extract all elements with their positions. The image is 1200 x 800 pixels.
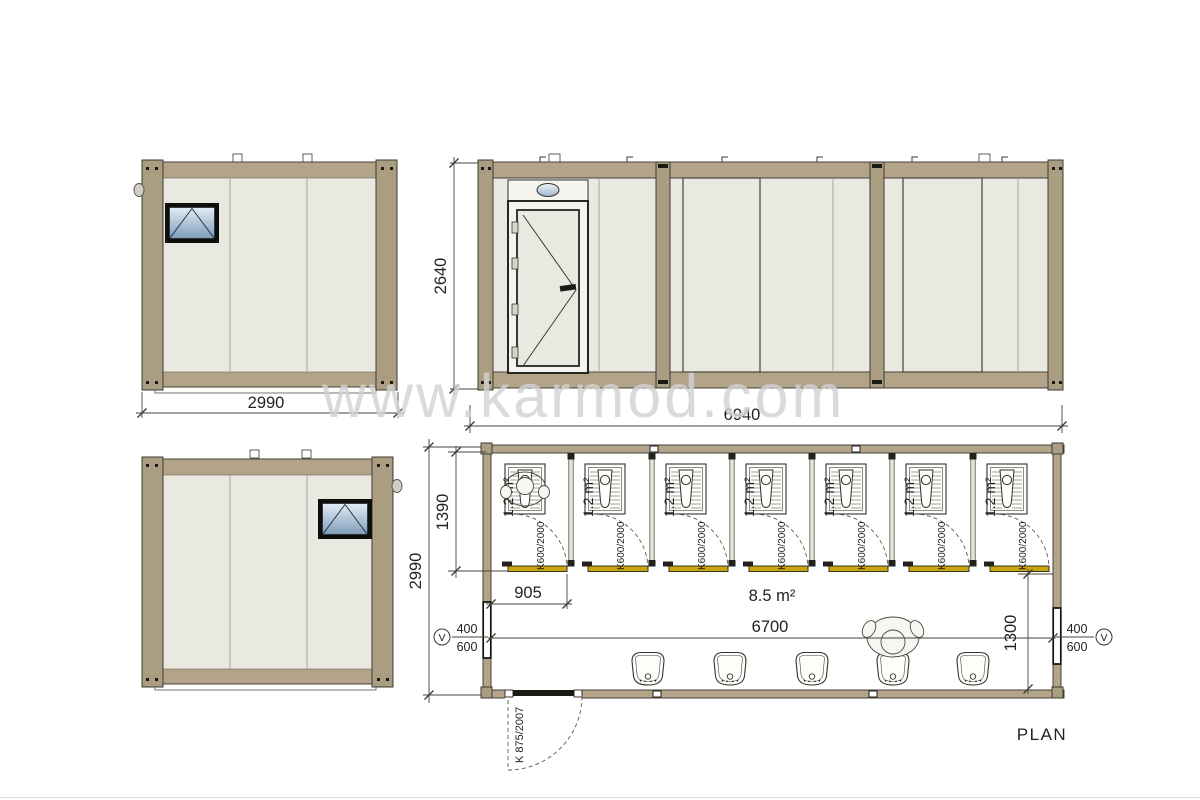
window-height: 600 — [1067, 640, 1088, 654]
lamp — [537, 184, 559, 197]
washbasin — [714, 653, 746, 686]
washbasin — [796, 653, 828, 686]
stall-partition — [649, 453, 656, 567]
watermark: www.karmod.com — [322, 361, 845, 431]
lifting-hook — [392, 480, 402, 493]
drawing-canvas: 2990 — [0, 0, 1200, 800]
stall-area-label: 1.2 m² — [901, 477, 917, 517]
entrance-door-elevation — [508, 180, 588, 373]
stall-area-label: 1.2 m² — [580, 477, 596, 517]
window-marker-left: 400 600 V — [434, 622, 488, 654]
stall-door-label: K600/2000 — [536, 521, 547, 570]
stall-area-label: 1.2 m² — [982, 477, 998, 517]
toilet-stall-6: 1.2 m² K600/2000 — [901, 464, 969, 572]
toilet-stall-5: 1.2 m² K600/2000 — [821, 464, 888, 572]
stall-partition — [568, 453, 575, 567]
stall-area-label: 1.2 m² — [741, 477, 757, 517]
roof-lug — [250, 450, 259, 458]
dim-label: 6700 — [752, 618, 789, 636]
toilet-stall-1: 1.2 m² K600/2000 — [500, 464, 567, 572]
plan-window-left — [483, 602, 491, 658]
side-elevation-bottom — [142, 450, 402, 690]
stall-door-label: K600/2000 — [777, 521, 788, 570]
stall-partition — [889, 453, 896, 567]
stall-area-label: 1.2 m² — [661, 477, 677, 517]
hall-area-label: 8.5 m² — [749, 587, 796, 605]
window-width: 400 — [1067, 622, 1088, 636]
stall-partition — [809, 453, 816, 567]
stall-partition — [970, 453, 977, 567]
dim-label: 2990 — [248, 394, 285, 412]
stall-door-label: K600/2000 — [857, 521, 868, 570]
corner-post-left — [142, 457, 163, 687]
toilet-stall-7: 1.2 m² K600/2000 — [982, 464, 1049, 572]
stall-door-label: K600/2000 — [616, 521, 627, 570]
window-symbol: V — [438, 632, 445, 644]
dim-label: 2990 — [407, 553, 425, 590]
dimension-hall-depth-1300: 1300 — [1002, 569, 1053, 694]
entry-door: K 875/2007 — [505, 689, 582, 770]
module-post — [870, 162, 884, 388]
corner-post-right — [376, 160, 397, 390]
top-rail — [163, 162, 376, 178]
top-rail — [163, 459, 372, 475]
corner-post-left — [478, 160, 493, 390]
module-post — [656, 162, 670, 388]
toilet-stall-2: 1.2 m² K600/2000 — [580, 464, 648, 572]
roof-lug — [303, 154, 312, 162]
top-rail — [493, 162, 1048, 178]
window-marker-right: 400 600 V — [1056, 622, 1112, 654]
dimension-stall-depth-1390: 1390 — [434, 446, 508, 578]
door-leaf — [513, 690, 574, 696]
window-width: 400 — [457, 622, 478, 636]
toilet-stall-3: 1.2 m² K600/2000 — [661, 464, 728, 572]
standing-person — [859, 617, 926, 657]
awning-window — [165, 203, 219, 243]
washbasin — [632, 653, 664, 686]
dim-label: 1300 — [1002, 615, 1020, 652]
dimension-stall-width-905: 905 — [486, 574, 572, 609]
entry-door-label: K 875/2007 — [514, 707, 526, 763]
floor-plan: 1.2 m² K600/2000 1.2 m² K600/2000 1.2 m²… — [407, 439, 1112, 770]
window-height: 600 — [457, 640, 478, 654]
corner-post-right — [372, 457, 393, 687]
roof-lug — [233, 154, 242, 162]
stall-door-label: K600/2000 — [1018, 521, 1029, 570]
stall-partition — [729, 453, 736, 567]
door-jamb — [574, 690, 582, 697]
roof-lug — [302, 450, 311, 458]
corner-post-left — [142, 160, 163, 390]
door-jamb — [505, 690, 513, 697]
dim-label: 1390 — [434, 494, 452, 531]
toilet-stall-4: 1.2 m² K600/2000 — [741, 464, 808, 572]
lifting-hook — [134, 184, 144, 197]
stall-area-label: 1.2 m² — [821, 477, 837, 517]
stall-door-label: K600/2000 — [697, 521, 708, 570]
wall-top — [481, 445, 1064, 453]
stall-door-label: K600/2000 — [937, 521, 948, 570]
bottom-rail — [163, 669, 372, 684]
dim-label: 2640 — [432, 258, 450, 295]
corner-post-right — [1048, 160, 1063, 390]
dim-label: 905 — [514, 584, 542, 602]
washbasin — [957, 653, 989, 686]
footer-divider — [0, 797, 1200, 798]
window-symbol: V — [1100, 632, 1107, 644]
dimension-height-2640: 2640 — [432, 157, 478, 395]
washbasins — [632, 653, 989, 686]
awning-window — [318, 499, 372, 539]
dimension-hall-width-6700: 6700 — [487, 618, 1058, 643]
plan-title: PLAN — [1017, 725, 1067, 744]
